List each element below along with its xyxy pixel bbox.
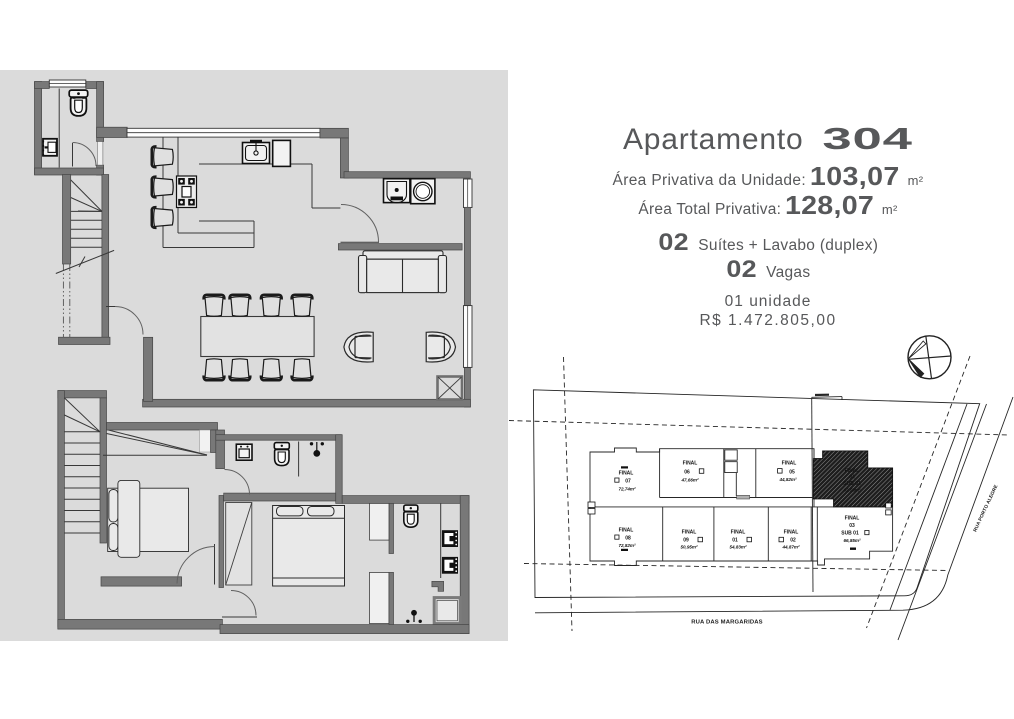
svg-text:FINAL: FINAL [619, 528, 634, 534]
svg-text:RUA PORTO ALEGRE: RUA PORTO ALEGRE [972, 483, 999, 533]
svg-text:01: 01 [732, 538, 738, 544]
svg-text:09: 09 [683, 538, 689, 544]
svg-text:05: 05 [789, 470, 795, 476]
svg-text:04: 04 [849, 475, 855, 481]
svg-text:66,85m²: 66,85m² [843, 538, 861, 543]
svg-text:54,83m²: 54,83m² [729, 545, 747, 550]
svg-text:47,66m²: 47,66m² [680, 477, 699, 482]
svg-text:06: 06 [684, 470, 690, 476]
svg-text:72,82m²: 72,82m² [618, 543, 636, 548]
svg-text:FINAL: FINAL [845, 468, 860, 474]
svg-text:FINAL: FINAL [683, 461, 698, 467]
svg-text:FINAL: FINAL [784, 530, 799, 536]
svg-text:50,95m²: 50,95m² [680, 545, 698, 550]
svg-text:03: 03 [849, 523, 855, 529]
svg-text:FINAL: FINAL [782, 461, 797, 467]
svg-text:72,74m²: 72,74m² [618, 487, 636, 492]
svg-text:RUA DAS MARGARIDAS: RUA DAS MARGARIDAS [691, 620, 763, 626]
svg-text:62,56m²: 62,56m² [843, 488, 861, 493]
svg-text:SUB 01: SUB 01 [841, 531, 859, 537]
svg-text:07: 07 [625, 479, 631, 485]
svg-text:44,87m²: 44,87m² [781, 545, 800, 550]
svg-text:08: 08 [625, 536, 631, 542]
svg-text:SUB 01: SUB 01 [843, 481, 861, 487]
svg-text:FINAL: FINAL [682, 530, 697, 536]
svg-text:FINAL: FINAL [619, 471, 634, 477]
svg-text:FINAL: FINAL [731, 530, 746, 536]
svg-text:44,82m²: 44,82m² [778, 477, 797, 482]
svg-text:02: 02 [790, 538, 796, 544]
svg-text:FINAL: FINAL [845, 516, 860, 522]
